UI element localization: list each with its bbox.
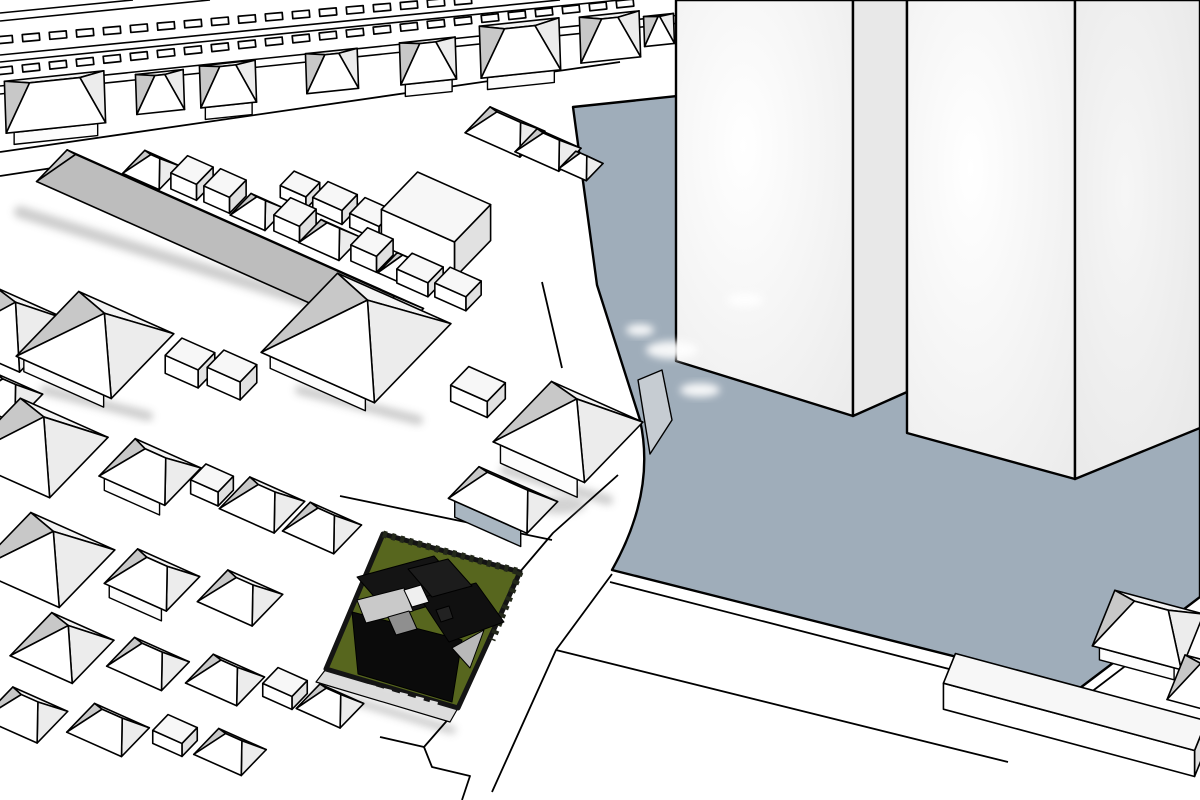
site-model-rendering: [0, 0, 1200, 800]
viewport: [0, 0, 1200, 800]
hip-roof-house: [479, 18, 560, 90]
hip-roof-house: [135, 70, 184, 115]
hip-roof-house: [399, 37, 456, 96]
hip-roof-house: [199, 60, 256, 119]
hip-roof-house: [644, 13, 675, 46]
hip-roof-house: [4, 71, 105, 145]
hip-roof-house: [579, 11, 640, 63]
hip-roof-house: [305, 48, 358, 93]
